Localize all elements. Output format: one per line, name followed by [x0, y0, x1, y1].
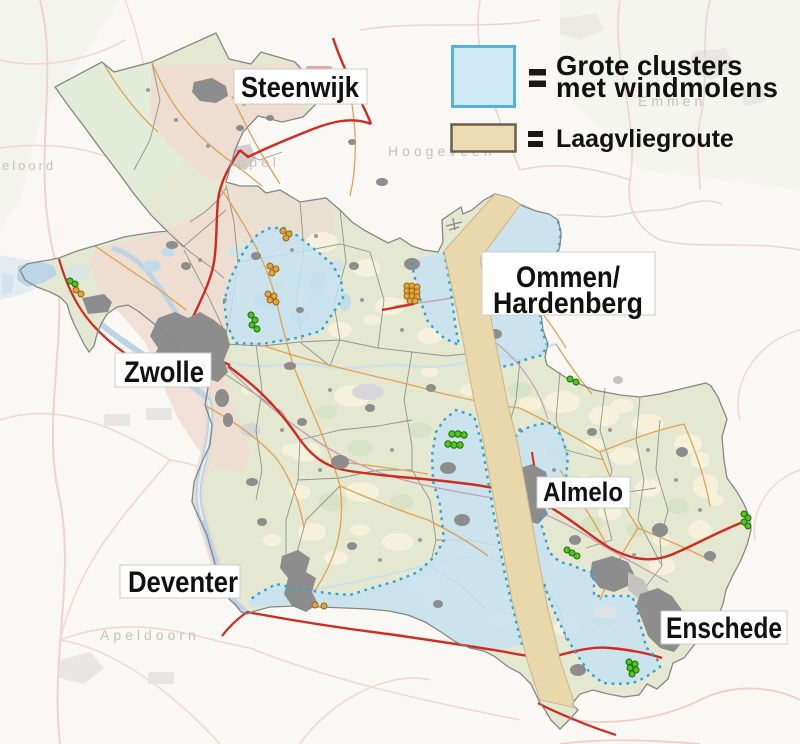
- svg-text:Steenwijk: Steenwijk: [241, 72, 360, 104]
- svg-text:Apeldoorn: Apeldoorn: [100, 627, 200, 643]
- svg-text:Almelo: Almelo: [543, 477, 623, 507]
- svg-text:met windmolens: met windmolens: [556, 72, 778, 103]
- svg-text:Enschede: Enschede: [666, 612, 782, 645]
- svg-text:Laagvliegroute: Laagvliegroute: [556, 125, 734, 153]
- svg-text:eloord: eloord: [2, 158, 56, 173]
- svg-text:Hardenberg: Hardenberg: [493, 287, 643, 320]
- svg-text:Deventer: Deventer: [128, 566, 238, 599]
- svg-text:Zwolle: Zwolle: [124, 356, 204, 389]
